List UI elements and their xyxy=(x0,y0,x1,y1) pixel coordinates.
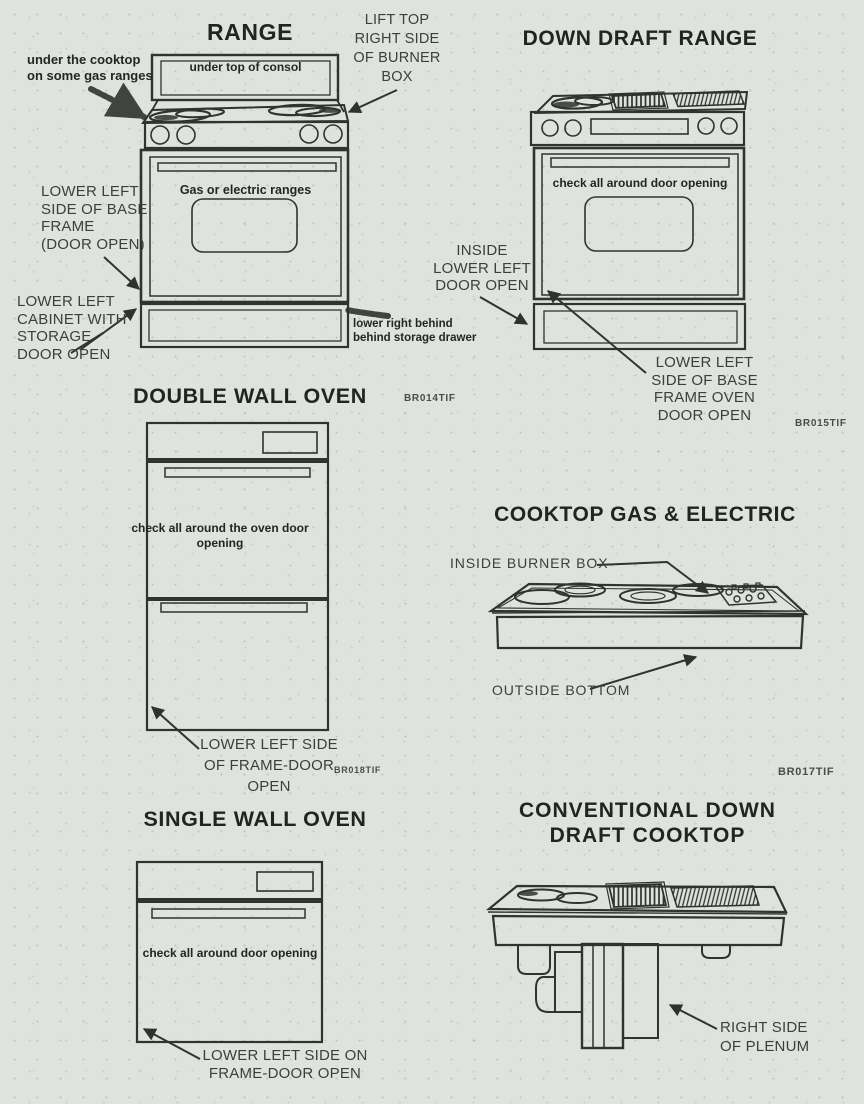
cooktop-gas-electric-diagram xyxy=(491,562,806,689)
line-art-layer xyxy=(0,0,864,1104)
down-draft-range-diagram xyxy=(480,91,747,373)
figure-code-br014: BR014TIF xyxy=(404,393,456,404)
figure-code-br015: BR015TIF xyxy=(795,418,847,429)
down-draft-range-title: DOWN DRAFT RANGE xyxy=(510,26,770,51)
double-wall-oven-title: DOUBLE WALL OVEN xyxy=(120,384,380,409)
conventional-downdraft-title: CONVENTIONAL DOWN DRAFT COOKTOP xyxy=(490,798,805,848)
ddr-inside-lower-left-label: INSIDE LOWER LEFT DOOR OPEN xyxy=(432,242,532,295)
figure-code-br018: BR018TIF xyxy=(334,765,381,775)
range-lower-left-cabinet-label: LOWER LEFT CABINET WITH STORAGE DOOR OPE… xyxy=(17,293,142,363)
scanned-diagram-page: RANGE LIFT TOP RIGHT SIDE OF BURNER BOX … xyxy=(0,0,864,1104)
dwo-lower-left-frame-label: LOWER LEFT SIDE OF FRAME-DOOR OPEN xyxy=(198,734,340,797)
outside-bottom-label: OUTSIDE BOTTOM xyxy=(492,682,630,698)
ddr-door-text: check all around door opening xyxy=(545,176,735,191)
range-under-console-label: under top of consol xyxy=(161,60,330,75)
double-wall-oven-diagram xyxy=(147,423,328,749)
range-lift-top-label: LIFT TOP RIGHT SIDE OF BURNER BOX xyxy=(343,11,451,87)
swo-door-text: check all around door opening xyxy=(140,946,320,961)
inside-burner-box-label: INSIDE BURNER BOX xyxy=(450,555,608,571)
range-oven-text: Gas or electric ranges xyxy=(150,183,341,198)
dwo-door-text: check all around the oven door opening xyxy=(110,521,330,550)
range-lower-right-behind-label: lower right behind behind storage drawer xyxy=(353,317,493,345)
single-wall-oven-diagram xyxy=(137,862,322,1059)
range-lower-left-base-label: LOWER LEFT SIDE OF BASE FRAME (DOOR OPEN… xyxy=(41,183,156,253)
right-side-plenum-label: RIGHT SIDE OF PLENUM xyxy=(720,1018,840,1056)
range-title: RANGE xyxy=(190,20,310,45)
figure-code-br017: BR017TIF xyxy=(778,766,834,778)
cooktop-gas-electric-title: COOKTOP GAS & ELECTRIC xyxy=(465,502,825,527)
ddr-lower-left-base-label: LOWER LEFT SIDE OF BASE FRAME OVEN DOOR … xyxy=(648,354,761,424)
swo-lower-left-frame-label: LOWER LEFT SIDE ON FRAME-DOOR OPEN xyxy=(200,1047,370,1083)
single-wall-oven-title: SINGLE WALL OVEN xyxy=(125,807,385,832)
